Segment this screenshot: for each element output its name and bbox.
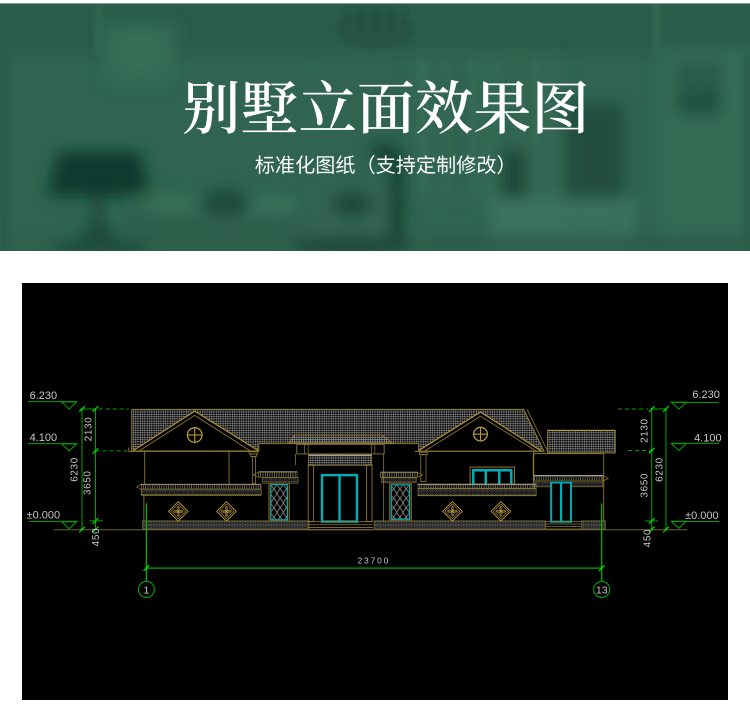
svg-text:450: 450 — [643, 529, 654, 548]
svg-text:1: 1 — [143, 584, 149, 596]
svg-text:6.230: 6.230 — [30, 390, 58, 402]
svg-text:4.100: 4.100 — [30, 432, 58, 444]
svg-text:23700: 23700 — [358, 555, 391, 565]
svg-text:2130: 2130 — [640, 418, 651, 443]
svg-text:±0.000: ±0.000 — [685, 510, 719, 522]
svg-text:3650: 3650 — [83, 470, 94, 495]
svg-text:2130: 2130 — [84, 417, 95, 442]
svg-text:6.230: 6.230 — [692, 389, 720, 401]
svg-text:13: 13 — [596, 584, 608, 596]
svg-text:±0.000: ±0.000 — [27, 510, 61, 522]
svg-text:4.100: 4.100 — [694, 433, 722, 445]
svg-text:6230: 6230 — [654, 457, 665, 482]
svg-text:3650: 3650 — [640, 473, 651, 498]
svg-text:6230: 6230 — [70, 457, 81, 482]
svg-text:450: 450 — [91, 528, 102, 547]
